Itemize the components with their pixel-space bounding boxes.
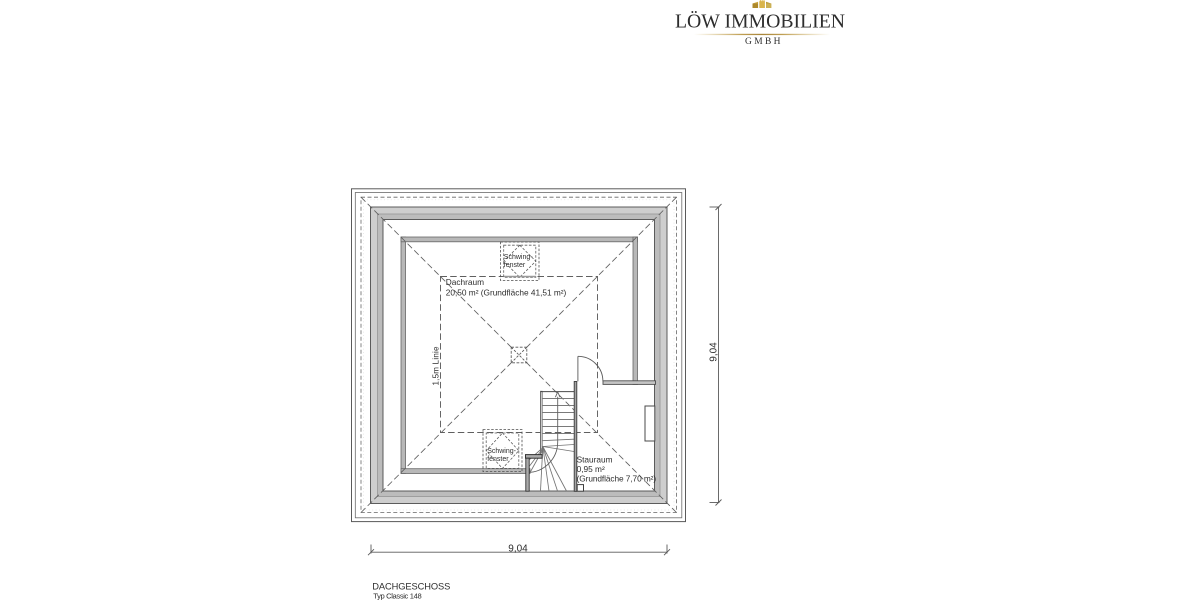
svg-text:fenster: fenster (487, 456, 509, 463)
svg-text:G M B H: G M B H (745, 36, 781, 46)
svg-text:0,95 m²: 0,95 m² (577, 464, 605, 474)
svg-text:Schwing-: Schwing- (487, 448, 516, 455)
svg-text:20,50 m² (Grundfläche 41,51 m: 20,50 m² (Grundfläche 41,51 m²) (446, 288, 567, 298)
svg-text:1,5m Linie: 1,5m Linie (432, 346, 441, 386)
svg-text:fenster: fenster (504, 262, 526, 269)
svg-text:(Grundfläche 7,70 m²): (Grundfläche 7,70 m²) (577, 474, 657, 484)
svg-text:Schwing-: Schwing- (504, 254, 533, 261)
svg-text:LÖW IMMOBILIEN: LÖW IMMOBILIEN (675, 10, 845, 33)
svg-text:9,04: 9,04 (709, 342, 720, 362)
svg-text:DACHGESCHOSS: DACHGESCHOSS (372, 581, 450, 591)
svg-text:Typ Classic 148: Typ Classic 148 (373, 591, 422, 600)
svg-text:9,04: 9,04 (508, 543, 528, 554)
svg-text:Dachraum: Dachraum (446, 277, 484, 287)
